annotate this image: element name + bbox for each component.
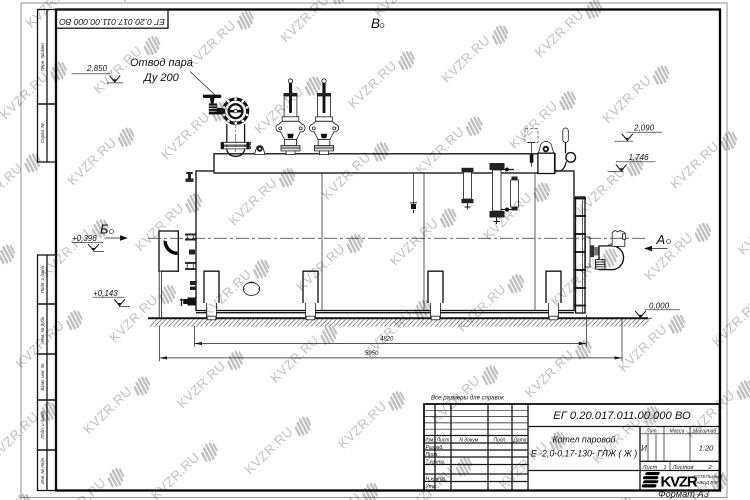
svg-text:Изм.: Изм. — [424, 438, 435, 444]
svg-text:Листов: Листов — [671, 465, 693, 471]
svg-text:1: 1 — [663, 465, 666, 471]
svg-text:Инв. № подл.: Инв. № подл. — [40, 457, 45, 484]
svg-text:Лист: Лист — [642, 465, 658, 471]
svg-text:+0,143: +0,143 — [93, 289, 118, 298]
svg-text:Ду 200: Ду 200 — [142, 72, 180, 84]
svg-text:1:20: 1:20 — [699, 444, 714, 453]
svg-text:Дата: Дата — [512, 438, 526, 444]
svg-text:Перв. примен.: Перв. примен. — [40, 42, 45, 71]
svg-text:А: А — [656, 232, 666, 247]
svg-text:Справ. №: Справ. № — [40, 123, 45, 143]
svg-text:Лит.: Лит. — [645, 428, 658, 434]
svg-text:N докум.: N докум. — [459, 438, 479, 444]
svg-text:Разраб.: Разраб. — [426, 445, 444, 451]
svg-text:Лист: Лист — [436, 438, 450, 444]
svg-text:Масса: Масса — [670, 428, 685, 434]
svg-text:И: И — [641, 444, 647, 453]
svg-text:Подп.: Подп. — [493, 438, 506, 444]
svg-text:Т.контр.: Т.контр. — [426, 460, 446, 466]
svg-text:ЕГ 0.20.017.011.00.000 ВО: ЕГ 0.20.017.011.00.000 ВО — [59, 17, 165, 27]
svg-text:Взам. инв. №: Взам. инв. № — [40, 363, 45, 390]
svg-text:0,000: 0,000 — [649, 302, 670, 311]
svg-text:ЕГ 0.20.017.011.00.000 ВО: ЕГ 0.20.017.011.00.000 ВО — [553, 410, 691, 422]
svg-text:Пров.: Пров. — [426, 452, 439, 458]
svg-text:2,090: 2,090 — [633, 124, 655, 133]
